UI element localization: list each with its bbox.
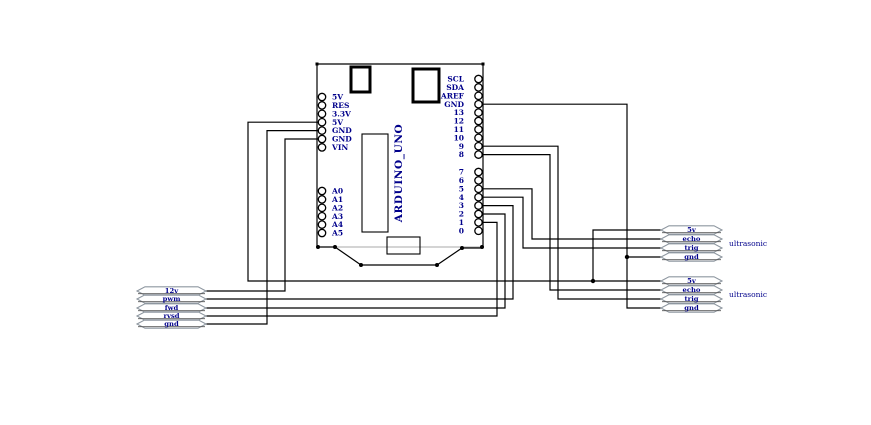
pin-3 — [475, 202, 482, 209]
power-jack — [413, 69, 439, 102]
pin-11 — [475, 126, 482, 133]
usb-connector — [351, 67, 370, 92]
pin-gnd — [318, 127, 325, 134]
pin-gnd — [318, 135, 325, 142]
pin-0 — [475, 227, 482, 234]
junction-dot — [333, 245, 337, 249]
pin-9 — [475, 143, 482, 150]
schematic-canvas: 5VRES3.3V5VGNDGNDVINA0A1A2A3A4A5SCLSDAAR… — [0, 0, 871, 425]
junction-dot — [460, 246, 464, 250]
wire-rvsd-pin1 — [206, 222, 497, 316]
pin-5v — [318, 93, 325, 100]
junction-dot — [316, 245, 320, 249]
terminal-label-gnd: gnd — [684, 304, 699, 312]
schematic-page: 5VRES3.3V5VGNDGNDVINA0A1A2A3A4A5SCLSDAAR… — [0, 0, 871, 425]
wire-pin4-trig1 — [482, 197, 661, 248]
terminal-label-fwd: fwd — [165, 304, 179, 312]
pin-label-vin: VIN — [331, 143, 348, 152]
wire-pin8-echo2 — [482, 155, 661, 290]
pin-scl — [475, 75, 482, 82]
pin-a5 — [318, 229, 325, 236]
pin-3.3v — [318, 110, 325, 117]
terminal-label-12v: 12v — [165, 287, 179, 295]
pin-10 — [475, 134, 482, 141]
terminal-label-5v: 5v — [687, 277, 697, 285]
ultrasonic-terminal-group-2: 5vechotriggndultrasonic — [661, 277, 767, 312]
junction-dot — [591, 279, 595, 283]
pin-5 — [475, 185, 482, 192]
pin-8 — [475, 151, 482, 158]
motor-terminal-group: 12vpwmfwdrvsdgnd — [137, 287, 206, 328]
junction-dot — [625, 255, 629, 259]
terminal-label-trig: trig — [684, 295, 698, 303]
ultrasonic-label: ultrasonic — [729, 239, 767, 248]
terminal-label-5v: 5v — [687, 226, 697, 234]
pin-vin — [318, 144, 325, 151]
ultrasonic-terminal-group-1: 5vechotriggndultrasonic — [661, 226, 767, 261]
pin-5v — [318, 119, 325, 126]
pin-4 — [475, 194, 482, 201]
arduino-board: 5VRES3.3V5VGNDGNDVINA0A1A2A3A4A5SCLSDAAR… — [316, 63, 485, 268]
part-name: ARDUINO_UNO — [393, 124, 406, 224]
pin-label-0: 0 — [459, 226, 464, 235]
junction-dot — [480, 245, 484, 249]
pin-a4 — [318, 221, 325, 228]
pin-a3 — [318, 213, 325, 220]
junction-dot — [435, 263, 439, 267]
wire-gnd-to-terminal — [206, 131, 318, 324]
pin-res — [318, 102, 325, 109]
junction-dot — [359, 263, 363, 267]
pin-6 — [475, 177, 482, 184]
pin-aref — [475, 92, 482, 99]
bottom-component — [387, 237, 420, 254]
pin-2 — [475, 210, 482, 217]
pin-7 — [475, 168, 482, 175]
wires — [206, 104, 661, 324]
terminal-label-rvsd: rvsd — [163, 312, 179, 320]
pin-a2 — [318, 204, 325, 211]
terminal-label-gnd: gnd — [164, 320, 179, 328]
pin-label-a5: A5 — [331, 229, 343, 238]
terminal-label-gnd: gnd — [684, 253, 699, 261]
pin-a1 — [318, 196, 325, 203]
terminal-label-trig: trig — [684, 244, 698, 252]
wire-pin5-echo1 — [482, 189, 661, 239]
wire-pwm-pin3 — [206, 206, 513, 299]
corner-marker — [482, 63, 485, 66]
terminal-label-echo: echo — [683, 235, 701, 243]
terminal-label-pwm: pwm — [163, 295, 182, 303]
mcu-chip — [362, 134, 388, 232]
pin-label-8: 8 — [459, 150, 464, 159]
pin-a0 — [318, 187, 325, 194]
wire-12v-to-terminal — [206, 139, 318, 291]
pin-13 — [475, 109, 482, 116]
terminal-label-echo: echo — [683, 286, 701, 294]
pin-gnd — [475, 101, 482, 108]
pin-1 — [475, 219, 482, 226]
wire-5v-bus — [248, 122, 661, 281]
pin-sda — [475, 84, 482, 91]
wire-pin9-trig2 — [482, 146, 661, 299]
ultrasonic-label: ultrasonic — [729, 290, 767, 299]
corner-marker — [316, 63, 319, 66]
bottom-strap — [318, 247, 482, 265]
pin-12 — [475, 117, 482, 124]
